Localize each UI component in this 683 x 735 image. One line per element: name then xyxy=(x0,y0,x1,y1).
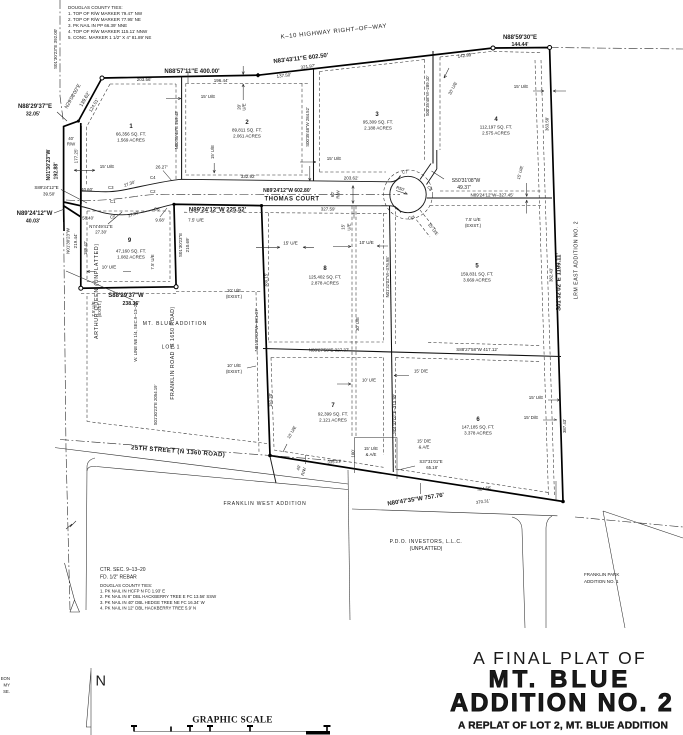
svg-text:389.15': 389.15' xyxy=(264,273,269,287)
svg-text:3. PK NAIL IN PP 66.39' NNE: 3. PK NAIL IN PP 66.39' NNE xyxy=(68,23,127,28)
svg-text:S37'31'01"E: S37'31'01"E xyxy=(419,459,442,464)
svg-text:2.188 ACRES: 2.188 ACRES xyxy=(364,126,392,131)
svg-text:39.50': 39.50' xyxy=(43,192,55,197)
svg-text:EON: EON xyxy=(1,676,10,681)
svg-text:N: N xyxy=(96,674,106,690)
svg-text:THOMAS COURT: THOMAS COURT xyxy=(265,197,320,203)
svg-text:196.44': 196.44' xyxy=(214,78,229,83)
svg-text:C1: C1 xyxy=(110,199,116,204)
svg-text:40.03': 40.03' xyxy=(26,219,40,225)
svg-text:W. LINE NE 1/4, SEC.9–13–20: W. LINE NE 1/4, SEC.9–13–20 xyxy=(133,302,138,362)
svg-text:& A/E: & A/E xyxy=(366,452,377,457)
svg-text:3. PK NAIL IN 40" DBL HEDGE T: 3. PK NAIL IN 40" DBL HEDGE TREE NE FC 1… xyxy=(100,600,206,605)
svg-text:GRAPHIC SCALE: GRAPHIC SCALE xyxy=(192,716,272,726)
svg-text:10' U/E: 10' U/E xyxy=(227,288,241,293)
svg-text:10' U/E: 10' U/E xyxy=(359,240,374,245)
svg-text:S00'35'48"W 284.52': S00'35'48"W 284.52' xyxy=(305,107,310,147)
svg-text:C5: C5 xyxy=(110,215,116,220)
svg-text:N88'29'37"E: N88'29'37"E xyxy=(18,104,52,110)
svg-text:(EXIST.): (EXIST.) xyxy=(226,369,243,374)
svg-text:9.68': 9.68' xyxy=(155,218,164,223)
svg-text:15' U/E: 15' U/E xyxy=(327,156,342,161)
svg-text:387.43': 387.43' xyxy=(562,419,567,433)
svg-text:R/W: R/W xyxy=(67,142,76,147)
svg-text:2.878 ACRES: 2.878 ACRES xyxy=(311,281,339,286)
svg-text:S88'29'37"W: S88'29'37"W xyxy=(108,293,144,299)
svg-text:15' U/E: 15' U/E xyxy=(514,84,529,89)
svg-text:C2: C2 xyxy=(150,189,156,194)
svg-text:203.62': 203.62' xyxy=(344,176,359,181)
svg-text:27.30': 27.30' xyxy=(95,230,107,235)
svg-text:4. PK NAIL IN 12" DBL HACKBER: 4. PK NAIL IN 12" DBL HACKBERRY TREE 5.9… xyxy=(100,605,196,610)
svg-text:7.5' U/E: 7.5' U/E xyxy=(188,218,204,223)
svg-text:N89'24'12"W–327.45': N89'24'12"W–327.45' xyxy=(471,193,514,198)
svg-text:N88'57'11"E 400.00': N88'57'11"E 400.00' xyxy=(164,69,220,75)
svg-text:S01'32'02"E–313.30': S01'32'02"E–313.30' xyxy=(392,394,397,434)
svg-text:92,399 SQ. FT.: 92,399 SQ. FT. xyxy=(318,412,348,417)
svg-text:210.69': 210.69' xyxy=(185,238,190,253)
svg-text:MY: MY xyxy=(4,683,11,688)
svg-text:15' U/E: 15' U/E xyxy=(210,145,215,159)
svg-text:LRM EAST ADDITION NO. 2: LRM EAST ADDITION NO. 2 xyxy=(574,221,580,299)
svg-text:40.60': 40.60' xyxy=(81,187,93,192)
svg-text:159,831 SQ. FT.: 159,831 SQ. FT. xyxy=(461,271,494,276)
svg-text:FD. 1/2" REBAR: FD. 1/2" REBAR xyxy=(100,575,137,581)
svg-text:2. PK NAIL IN 8" DBL HACKBERR: 2. PK NAIL IN 8" DBL HACKBERRY TREE E FC… xyxy=(100,594,217,599)
svg-text:R/W: R/W xyxy=(336,189,341,198)
svg-text:S01'30'23"E: S01'30'23"E xyxy=(178,233,183,257)
svg-text:S01'30'23"E 392.00': S01'30'23"E 392.00' xyxy=(53,29,58,69)
svg-text:S88'27'58"W 417.12': S88'27'58"W 417.12' xyxy=(456,347,498,352)
svg-text:C9: C9 xyxy=(408,216,414,221)
svg-text:1.569 ACRES: 1.569 ACRES xyxy=(117,138,145,143)
svg-text:(EXIST.): (EXIST.) xyxy=(97,300,102,317)
svg-text:238.36': 238.36' xyxy=(122,301,139,307)
svg-text:2.575 ACRES: 2.575 ACRES xyxy=(482,131,510,136)
svg-text:40': 40' xyxy=(68,136,74,141)
svg-text:327.59': 327.59' xyxy=(321,207,336,212)
svg-text:112,197 SQ. FT.: 112,197 SQ. FT. xyxy=(480,125,512,130)
svg-text:C4: C4 xyxy=(150,175,156,180)
svg-text:N01'30'23"W: N01'30'23"W xyxy=(66,227,71,254)
svg-text:15' U/E: 15' U/E xyxy=(364,446,378,451)
svg-text:N89'24'12"W: N89'24'12"W xyxy=(17,211,53,217)
svg-text:15' D/E: 15' D/E xyxy=(524,415,539,420)
svg-text:(UNPLATTED): (UNPLATTED) xyxy=(410,546,443,552)
svg-text:66,356 SQ. FT.: 66,356 SQ. FT. xyxy=(116,132,146,137)
svg-text:15' D/E: 15' D/E xyxy=(414,369,428,374)
svg-text:147,185 SQ. FT.: 147,185 SQ. FT. xyxy=(462,424,495,429)
svg-text:177.25': 177.25' xyxy=(74,149,79,164)
svg-text:N01'32'02"W–376.98': N01'32'02"W–376.98' xyxy=(385,256,390,297)
svg-text:S50'31'08"W: S50'31'08"W xyxy=(452,178,481,184)
svg-text:15': 15' xyxy=(341,224,346,230)
svg-text:1. PK NAIL IN HCFP N FC 1.93': 1. PK NAIL IN HCFP N FC 1.93' E xyxy=(100,589,165,594)
svg-text:89,811 SQ. FT.: 89,811 SQ. FT. xyxy=(232,128,262,133)
svg-text:S01'32'02"E 1199.11': S01'32'02"E 1199.11' xyxy=(557,253,563,311)
svg-text:ARTHUR QUEEN (UNPLATTED): ARTHUR QUEEN (UNPLATTED) xyxy=(94,243,100,339)
svg-text:1. TOP OF R/W MARKER 79.47' N: 1. TOP OF R/W MARKER 79.47' NW xyxy=(68,11,143,16)
svg-text:N74'49'41"E: N74'49'41"E xyxy=(89,224,113,229)
svg-text:FRANKLIN PARK: FRANKLIN PARK xyxy=(584,572,619,577)
svg-text:CTR. SEC. 9–13–20: CTR. SEC. 9–13–20 xyxy=(100,567,146,573)
svg-text:125,402 SQ. FT.: 125,402 SQ. FT. xyxy=(309,275,342,280)
svg-text:MT. BLUE ADDITION: MT. BLUE ADDITION xyxy=(143,321,208,327)
svg-text:N01'30'23"W: N01'30'23"W xyxy=(46,149,52,180)
svg-text:LOT 1: LOT 1 xyxy=(162,345,181,351)
svg-text:151.20': 151.20' xyxy=(268,393,273,407)
svg-text:A REPLAT OF LOT 2, MT. BLUE AD: A REPLAT OF LOT 2, MT. BLUE ADDITION xyxy=(458,721,668,732)
svg-text:N00'35'48"E 269.42': N00'35'48"E 269.42' xyxy=(174,111,179,150)
svg-text:203.56': 203.56' xyxy=(137,77,152,82)
svg-text:1.082 ACRES: 1.082 ACRES xyxy=(117,255,145,260)
svg-text:P.D.O. INVESTORS, L.L.C.: P.D.O. INVESTORS, L.L.C. xyxy=(390,539,463,545)
svg-text:382.43': 382.43' xyxy=(549,268,554,282)
svg-text:10' U/E: 10' U/E xyxy=(227,363,241,368)
svg-text:32.05': 32.05' xyxy=(26,112,40,118)
svg-text:363.58': 363.58' xyxy=(545,117,550,131)
svg-text:3.378 ACRES: 3.378 ACRES xyxy=(464,430,492,435)
svg-text:192.88': 192.88' xyxy=(54,162,60,179)
svg-text:(EXIST.): (EXIST.) xyxy=(465,223,482,228)
svg-text:26.27': 26.27' xyxy=(155,165,167,170)
svg-text:N88'59'30"E: N88'59'30"E xyxy=(503,35,537,41)
svg-text:2.121 ACRES: 2.121 ACRES xyxy=(319,418,347,423)
svg-text:S01'30'23"E 2054.19': S01'30'23"E 2054.19' xyxy=(153,384,158,425)
svg-text:(EXIST.): (EXIST.) xyxy=(226,294,243,299)
svg-text:N89'24'12"W 602.80': N89'24'12"W 602.80' xyxy=(263,188,311,194)
svg-text:15' D/E: 15' D/E xyxy=(417,439,431,444)
svg-text:219.44': 219.44' xyxy=(73,234,78,249)
svg-text:4. TOP OF R/W MARKER 115.11': 4. TOP OF R/W MARKER 115.11' NNW xyxy=(68,29,148,34)
svg-text:& A/E: & A/E xyxy=(419,445,430,450)
svg-text:ADDITION NO. 2: ADDITION NO. 2 xyxy=(450,689,674,717)
svg-text:15' U/E: 15' U/E xyxy=(529,395,544,400)
svg-text:95,309 SQ. FT.: 95,309 SQ. FT. xyxy=(363,120,393,125)
svg-text:3.669 ACRES: 3.669 ACRES xyxy=(463,277,491,282)
svg-text:144.44': 144.44' xyxy=(511,42,528,48)
svg-text:58.40': 58.40' xyxy=(82,216,94,221)
svg-text:ADDITION NO. 1: ADDITION NO. 1 xyxy=(584,579,619,584)
svg-text:DOUGLAS COUNTY TIES:: DOUGLAS COUNTY TIES: xyxy=(100,583,152,588)
svg-text:5. CONC. MARKER 1 1/2" X 4" 8: 5. CONC. MARKER 1 1/2" X 4" 81.89' NE xyxy=(68,35,151,40)
svg-text:N88'27'58"E 327.37': N88'27'58"E 327.37' xyxy=(309,348,350,353)
svg-text:S89'24'12"E: S89'24'12"E xyxy=(34,185,58,190)
svg-text:U/E: U/E xyxy=(347,223,352,230)
svg-text:47,160 SQ. FT.: 47,160 SQ. FT. xyxy=(116,249,146,254)
svg-text:15' U/E: 15' U/E xyxy=(201,94,216,99)
svg-text:2.061 ACRES: 2.061 ACRES xyxy=(233,134,261,139)
svg-text:10' U/E: 10' U/E xyxy=(102,265,117,270)
svg-text:10' U/E: 10' U/E xyxy=(362,378,376,383)
svg-text:15' U/E: 15' U/E xyxy=(283,241,298,246)
svg-text:7.5' U/E: 7.5' U/E xyxy=(465,217,480,222)
svg-text:189.42': 189.42' xyxy=(83,241,88,255)
svg-text:30' U/E: 30' U/E xyxy=(355,317,360,331)
svg-text:A FINAL PLAT OF: A FINAL PLAT OF xyxy=(473,648,647,668)
svg-text:S00'35'48"W–289.10': S00'35'48"W–289.10' xyxy=(425,75,430,116)
svg-text:15' U/E: 15' U/E xyxy=(100,164,115,169)
svg-text:60': 60' xyxy=(330,192,335,198)
svg-text:FRANKLIN WEST ADDITION: FRANKLIN WEST ADDITION xyxy=(223,501,306,507)
svg-text:7.5' U/E: 7.5' U/E xyxy=(91,301,96,316)
svg-text:49.37': 49.37' xyxy=(457,185,471,191)
svg-text:65.18': 65.18' xyxy=(426,465,438,470)
svg-text:SE.: SE. xyxy=(3,689,10,694)
svg-text:DOUGLAS COUNTY TIES:: DOUGLAS COUNTY TIES: xyxy=(68,5,123,10)
svg-text:U/E: U/E xyxy=(242,103,247,110)
svg-text:2. TOP OF R/W MARKER 77.95' N: 2. TOP OF R/W MARKER 77.95' NE xyxy=(68,17,141,22)
svg-text:7.5' U/E: 7.5' U/E xyxy=(150,254,155,269)
svg-text:C3: C3 xyxy=(108,185,114,190)
